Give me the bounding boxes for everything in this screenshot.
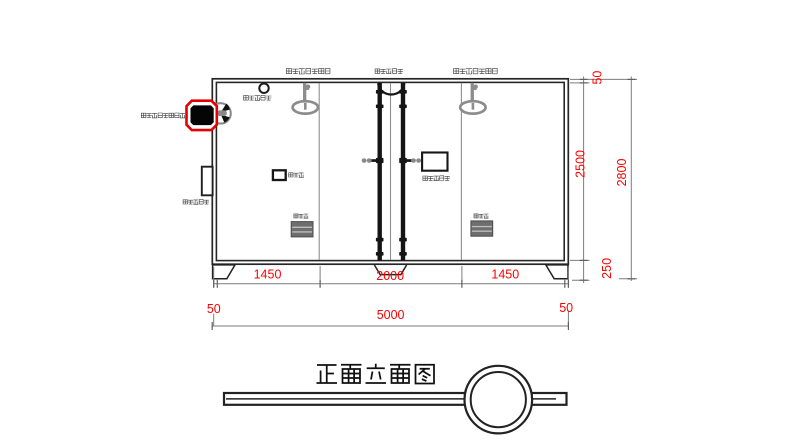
svg-text:2000: 2000 bbox=[376, 269, 404, 283]
svg-text:2500: 2500 bbox=[573, 150, 587, 178]
svg-text:1450: 1450 bbox=[254, 268, 282, 282]
svg-text:50: 50 bbox=[590, 71, 604, 85]
svg-text:2800: 2800 bbox=[615, 159, 629, 187]
svg-text:250: 250 bbox=[600, 258, 614, 279]
svg-text:1450: 1450 bbox=[491, 268, 519, 282]
svg-text:50: 50 bbox=[207, 302, 221, 316]
svg-text:5000: 5000 bbox=[377, 308, 405, 322]
svg-text:50: 50 bbox=[559, 301, 573, 315]
